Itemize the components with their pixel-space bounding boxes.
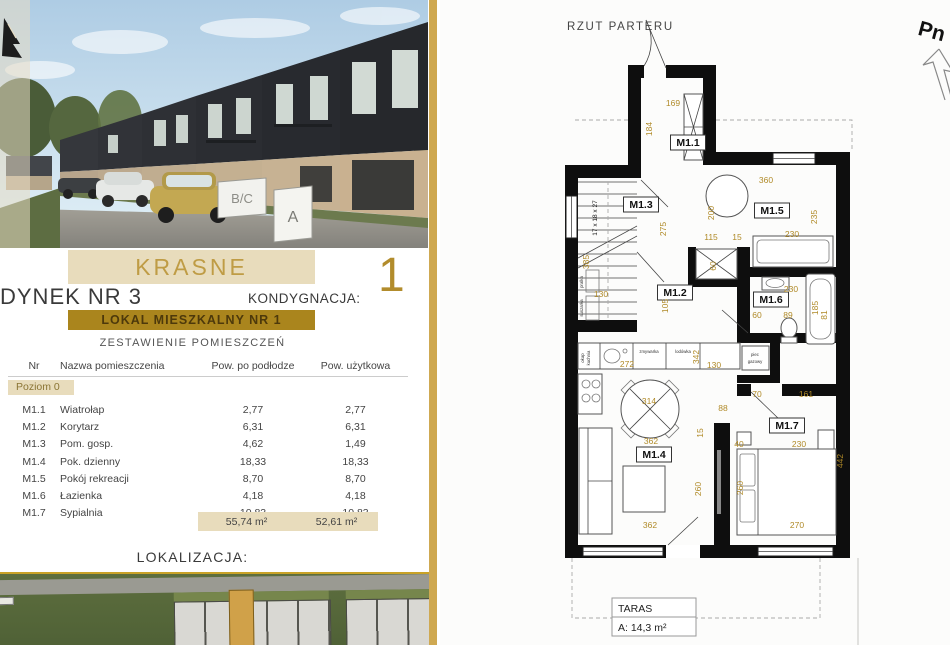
cell-name: Pom. gosp. — [60, 438, 198, 450]
table-row: M1.4 Pok. dzienny 18,33 18,33 — [8, 453, 408, 470]
photo-render: B/C A — [0, 0, 428, 248]
kondygnacja-value: 1 — [378, 248, 405, 303]
totals-band: 55,74 m² 52,61 m² — [198, 512, 378, 531]
cell-usable: 8,70 — [308, 473, 403, 485]
cell-name: Pokój rekreacji — [60, 473, 198, 485]
terrace-name: TARAS — [618, 603, 652, 615]
lokalizacja-title: LOKALIZACJA: — [40, 549, 345, 565]
highlighted-unit — [229, 590, 255, 645]
building-cluster-right — [346, 597, 437, 645]
dim-label: 230 — [784, 284, 798, 294]
stove — [578, 374, 602, 414]
north-arrow-icon — [923, 49, 950, 100]
dim-label: 230 — [792, 439, 806, 449]
photo-overlay-strip — [0, 0, 30, 248]
dim-label: 272 — [620, 359, 634, 369]
room-label: M1.5 — [760, 205, 784, 217]
room-label: M1.1 — [676, 137, 700, 149]
room-label: M1.7 — [775, 420, 799, 432]
stairs-label: 17 x 18 x 27 — [592, 200, 599, 236]
site-sign — [0, 597, 14, 605]
kondygnacja-label: KONDYGNACJA: — [248, 291, 361, 306]
gold-divider-bar — [429, 0, 437, 645]
cell-usable: 1,49 — [308, 438, 403, 450]
dining-table — [621, 380, 679, 438]
left-panel: B/C A KRASNE DYNEK NR 3 KONDYGNACJA: 1 L… — [0, 0, 440, 645]
cell-nr: M1.2 — [8, 421, 60, 433]
cell-name: Pok. dzienny — [60, 456, 198, 468]
tiny-label: gazowy — [748, 359, 763, 364]
building-title: DYNEK NR 3 — [0, 284, 142, 310]
dim-label: 60 — [752, 310, 762, 320]
cell-usable: 2,77 — [308, 404, 403, 416]
cell-nr: M1.6 — [8, 490, 60, 502]
tiny-label: kuchnia — [586, 350, 591, 365]
cell-floor: 18,33 — [198, 456, 308, 468]
sign-bc-label: B/C — [231, 191, 253, 206]
total-floor-area: 55,74 m² — [198, 516, 295, 528]
room-label: M1.4 — [642, 449, 666, 461]
dim-label: 130 — [594, 289, 608, 299]
cell-floor: 8,70 — [198, 473, 308, 485]
cell-floor: 4,62 — [198, 438, 308, 450]
header-usable-area: Pow. użytkowa — [308, 360, 403, 372]
table-header-row: Nr Nazwa pomieszczenia Pow. po podłodze … — [8, 356, 408, 377]
rooms-table-title: ZESTAWIENIE POMIESZCZEŃ — [40, 337, 345, 349]
dim-label: 362 — [643, 520, 657, 530]
level-chip: Poziom 0 — [8, 380, 74, 395]
cell-name: Wiatrołap — [60, 404, 198, 416]
cell-usable: 4,18 — [308, 490, 403, 502]
dim-label: 275 — [658, 222, 668, 236]
dim-label: 235 — [809, 210, 819, 224]
dim-label: 385 — [581, 255, 591, 269]
exterior-photo: B/C A — [0, 0, 428, 248]
cell-nr: M1.1 — [8, 404, 60, 416]
cell-name: Sypialnia — [60, 507, 198, 519]
cell-name: Korytarz — [60, 421, 198, 433]
cell-floor: 6,31 — [198, 421, 308, 433]
terrace-label: TARAS A: 14,3 m² — [612, 598, 696, 636]
gas-furnace-box — [742, 346, 769, 370]
developer-logo-icon — [0, 0, 30, 70]
rooms-table: Nr Nazwa pomieszczenia Pow. po podłodze … — [8, 356, 408, 522]
dim-label: 161 — [799, 389, 813, 399]
total-usable-area: 52,61 m² — [295, 516, 378, 528]
cell-nr: M1.5 — [8, 473, 60, 485]
dim-label: 360 — [759, 175, 773, 185]
table-row: M1.6 Łazienka 4,18 4,18 — [8, 487, 408, 504]
tiny-label: zmywarka — [639, 349, 659, 354]
cell-nr: M1.7 — [8, 507, 60, 519]
room-label: M1.6 — [759, 294, 783, 306]
floor-plan-drawing: TARAS A: 14,3 m² M1.1M1.2M1.3M1.4M1.5M1.… — [440, 0, 950, 645]
dim-label: 442 — [835, 454, 845, 468]
cell-floor: 2,77 — [198, 404, 308, 416]
lokal-band: LOKAL MIESZKALNY NR 1 — [68, 310, 315, 330]
table-row: M1.1 Wiatrołap 2,77 2,77 — [8, 401, 408, 418]
level-row: Poziom 0 — [8, 380, 408, 398]
dim-label: 260 — [693, 482, 703, 496]
dim-label: 15 — [695, 428, 705, 438]
dim-label: 184 — [644, 122, 654, 136]
dim-label: 270 — [790, 520, 804, 530]
cell-name: Łazienka — [60, 490, 198, 502]
terrace-area: A: 14,3 m² — [618, 622, 667, 634]
dim-label: 115 — [704, 232, 718, 242]
dim-label: 260 — [735, 481, 745, 495]
room-label: M1.2 — [663, 287, 687, 299]
project-title-band: KRASNE — [68, 250, 315, 284]
dim-label: 169 — [666, 98, 680, 108]
dim-label: 15 — [732, 232, 742, 242]
bedroom-furniture — [737, 430, 836, 535]
sliding-door — [717, 450, 721, 514]
tiny-label: lodówka — [675, 349, 691, 354]
sofa — [579, 428, 612, 534]
header-name: Nazwa pomieszczenia — [60, 360, 198, 372]
dim-label: 200 — [706, 206, 716, 220]
dim-label: 81 — [819, 310, 829, 320]
dim-label: 89 — [783, 310, 793, 320]
dim-label: 314 — [642, 396, 656, 406]
dim-label: 105 — [660, 299, 670, 313]
room-label: M1.3 — [629, 199, 653, 211]
dim-label: 230 — [785, 229, 799, 239]
table-row: M1.2 Korytarz 6,31 6,31 — [8, 418, 408, 435]
header-floor-area: Pow. po podłodze — [198, 360, 308, 372]
site-map — [0, 572, 437, 645]
cell-nr: M1.3 — [8, 438, 60, 450]
dim-label: 342 — [691, 350, 701, 364]
dim-label: 362 — [644, 436, 658, 446]
site-map-inner — [0, 572, 437, 645]
dim-label: 60 — [708, 261, 718, 271]
dim-label: 70 — [752, 389, 762, 399]
property-sheet: B/C A KRASNE DYNEK NR 3 KONDYGNACJA: 1 L… — [0, 0, 950, 645]
cell-nr: M1.4 — [8, 456, 60, 468]
tiny-label: pralka — [579, 276, 584, 288]
north-label: Pn — [916, 17, 948, 46]
dim-label: 130 — [707, 360, 721, 370]
cell-usable: 6,31 — [308, 421, 403, 433]
table-row: M1.3 Pom. gosp. 4,62 1,49 — [8, 436, 408, 453]
cell-floor: 4,18 — [198, 490, 308, 502]
table-row: M1.5 Pokój rekreacji 8,70 8,70 — [8, 470, 408, 487]
dim-label: 40 — [734, 439, 744, 449]
tiny-label: piec — [751, 352, 760, 357]
dim-label: 88 — [718, 403, 728, 413]
coffee-table — [623, 466, 665, 512]
cell-usable: 18,33 — [308, 456, 403, 468]
tiny-label: okap — [580, 353, 585, 363]
tiny-label: suszarka — [579, 299, 584, 317]
sign-a-label: A — [288, 209, 299, 226]
header-nr: Nr — [8, 360, 60, 372]
